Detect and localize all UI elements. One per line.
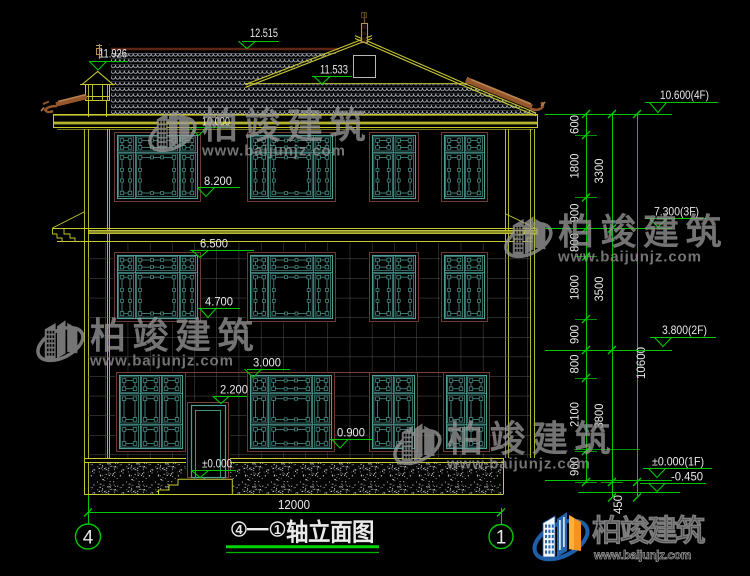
svg-text:www.baijunjz.com: www.baijunjz.com [201, 143, 346, 160]
svg-text:3500: 3500 [592, 276, 606, 301]
svg-text:www.baijunjz.com: www.baijunjz.com [89, 353, 234, 370]
svg-text:4: 4 [83, 528, 94, 549]
svg-text:2.200: 2.200 [220, 383, 248, 397]
svg-text:12.515: 12.515 [250, 26, 278, 40]
svg-text:12000: 12000 [278, 498, 310, 512]
svg-text:11.533: 11.533 [320, 63, 348, 77]
svg-text:柏竣建筑: 柏竣建筑 [558, 211, 728, 252]
svg-text:11.926: 11.926 [99, 47, 127, 61]
svg-text:6.500: 6.500 [200, 237, 228, 251]
svg-text:1800: 1800 [568, 153, 582, 178]
svg-text:±0.000: ±0.000 [202, 457, 232, 471]
svg-text:450: 450 [611, 495, 625, 514]
svg-text:3.000: 3.000 [253, 356, 281, 370]
svg-text:柏竣建筑: 柏竣建筑 [447, 418, 617, 459]
svg-text:-0.450: -0.450 [671, 470, 703, 484]
svg-text:0.900: 0.900 [337, 426, 365, 440]
svg-text:4.700: 4.700 [205, 295, 233, 309]
svg-text:轴立面图: 轴立面图 [286, 518, 374, 547]
svg-text:www.baijunjz.com: www.baijunjz.com [446, 456, 591, 473]
svg-text:8.200: 8.200 [204, 174, 232, 188]
svg-text:600: 600 [568, 115, 582, 134]
svg-text:1: 1 [274, 522, 281, 537]
svg-text:3300: 3300 [592, 158, 606, 183]
svg-text:柏竣建筑: 柏竣建筑 [90, 315, 260, 356]
svg-text:3.800(2F): 3.800(2F) [662, 323, 707, 337]
svg-text:800: 800 [568, 354, 582, 373]
svg-text:1: 1 [496, 528, 507, 549]
svg-text:4: 4 [235, 522, 243, 537]
svg-text:1800: 1800 [568, 275, 582, 300]
svg-text:±0.000(1F): ±0.000(1F) [652, 455, 704, 469]
svg-text:www.baijunjz.com: www.baijunjz.com [593, 548, 691, 562]
svg-text:柏竣建筑: 柏竣建筑 [202, 105, 372, 146]
svg-text:10.600(4F): 10.600(4F) [660, 88, 709, 102]
svg-text:www.baijunjz.com: www.baijunjz.com [557, 249, 702, 266]
svg-text:10600: 10600 [634, 347, 648, 379]
svg-text:柏竣建筑: 柏竣建筑 [592, 514, 705, 548]
svg-text:900: 900 [568, 325, 582, 344]
